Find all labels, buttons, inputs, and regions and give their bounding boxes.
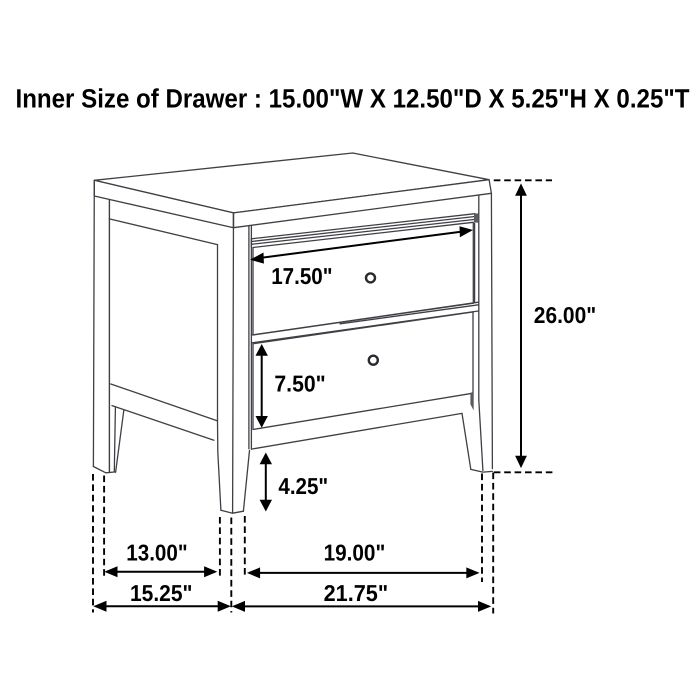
svg-text:4.25": 4.25" <box>278 473 328 499</box>
svg-text:15.25": 15.25" <box>130 580 193 606</box>
svg-text:26.00": 26.00" <box>534 302 596 328</box>
svg-text:17.50": 17.50" <box>271 263 332 289</box>
svg-text:7.50": 7.50" <box>274 371 325 397</box>
svg-text:13.00": 13.00" <box>126 540 187 566</box>
svg-text:21.75": 21.75" <box>324 580 389 606</box>
svg-text:19.00": 19.00" <box>324 540 386 566</box>
svg-text:Inner Size of Drawer : 15.00"W: Inner Size of Drawer : 15.00"W X 12.50"D… <box>16 83 690 113</box>
